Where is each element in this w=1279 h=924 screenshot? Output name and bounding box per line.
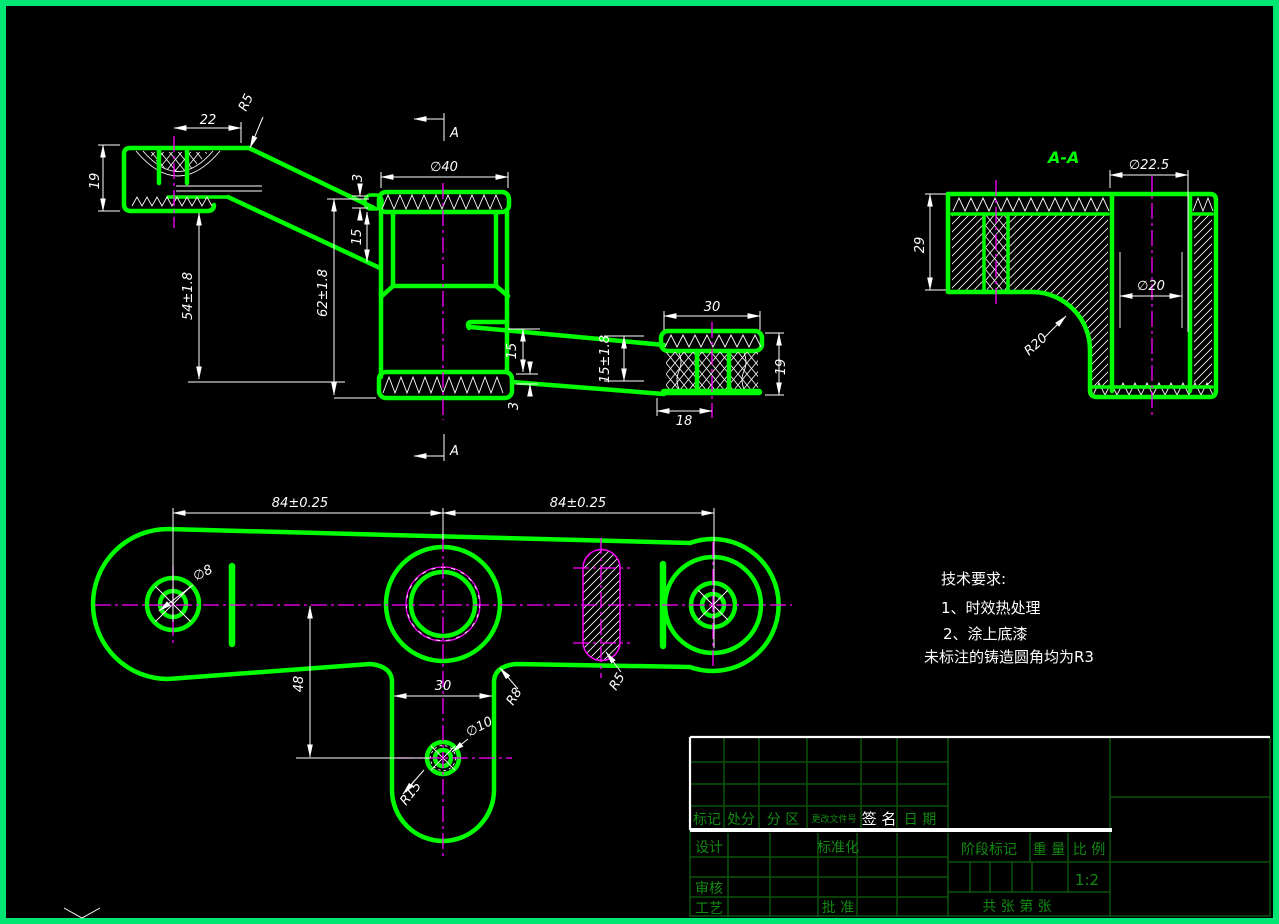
titleblock-stage-mark-label: 阶段标记: [961, 842, 1017, 858]
section-label-bottom: A: [449, 444, 459, 459]
titleblock-standardization-label: 标准化: [817, 840, 859, 856]
dim-30-label: 30: [704, 300, 721, 315]
tech-req-title: 技术要求:: [941, 570, 1006, 588]
dim-3-bottom-label: 3: [507, 402, 522, 410]
cad-drawing-sheet[interactable]: A A 22 R5 19 54±1.8 62±1.8 3 15: [0, 0, 1279, 924]
titleblock-change-no-label: 更改文件号: [811, 813, 856, 825]
dim-48-label: 48: [292, 676, 307, 693]
dim-19-right-label: 19: [774, 359, 789, 376]
titleblock-date-label: 日 期: [904, 812, 936, 828]
titleblock-approve-label: 批 准: [822, 900, 854, 916]
titleblock-count-label: 处分: [727, 812, 755, 828]
titleblock-mark-label: 标记: [693, 812, 721, 828]
titleblock-sheet-info: 共 张 第 张: [982, 898, 1051, 915]
dim-d40-label: ∅40: [430, 160, 458, 175]
tech-req-item-1: 1、时效热处理: [941, 599, 1041, 617]
dim-84-left-label: 84±0.25: [272, 496, 328, 511]
dim-22-label: 22: [200, 113, 217, 128]
dim-15-mid-label: 15: [505, 343, 520, 360]
sheet-background: [0, 0, 1279, 924]
titleblock-scale-value: 1:2: [1075, 871, 1099, 889]
dim-54-label: 54±1.8: [181, 272, 196, 320]
dim-29-label: 29: [913, 237, 928, 254]
titleblock-scale-label: 比 例: [1073, 842, 1105, 858]
dim-3-top-label: 3: [351, 174, 366, 182]
dim-15-left-label: 15: [350, 229, 365, 246]
dim-18-label: 18: [676, 414, 693, 429]
dim-15-tol-label: 15±1.8: [598, 335, 613, 383]
dim-30-label: 30: [435, 679, 452, 694]
titleblock-zone-label: 分 区: [767, 812, 799, 828]
dim-d225-label: ∅22.5: [1129, 158, 1169, 173]
dim-d20-label: ∅20: [1137, 279, 1165, 294]
section-title: A-A: [1046, 148, 1079, 167]
titleblock-design-label: 设计: [695, 840, 723, 856]
dim-19-label: 19: [88, 173, 103, 190]
tech-req-note: 未标注的铸造圆角均为R3: [924, 648, 1094, 666]
titleblock-weight-label: 重 量: [1033, 842, 1065, 858]
titleblock-signature-label: 签 名: [862, 810, 897, 828]
dim-62-label: 62±1.8: [316, 269, 331, 317]
drawing-canvas[interactable]: A A 22 R5 19 54±1.8 62±1.8 3 15: [0, 0, 1279, 924]
section-label-top: A: [449, 126, 459, 141]
tech-req-item-2: 2、涂上底漆: [943, 625, 1028, 643]
dim-84-right-label: 84±0.25: [550, 496, 606, 511]
titleblock-process-label: 工艺: [695, 901, 723, 917]
titleblock-audit-label: 审核: [695, 881, 723, 897]
